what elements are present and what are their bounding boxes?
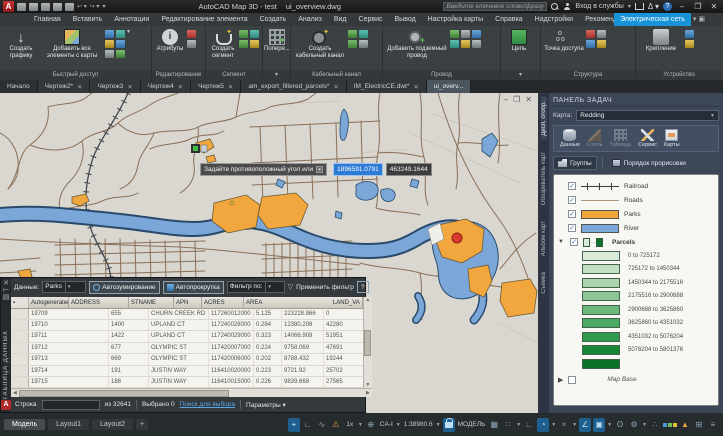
layers-legend: ✓ Railroad ✓ Roads ✓ Parks ✓ Riv bbox=[553, 174, 719, 406]
row-selector-cell[interactable] bbox=[11, 366, 29, 376]
workspace-gear-icon[interactable]: ⚙ bbox=[628, 418, 640, 432]
column-header[interactable]: APN bbox=[174, 297, 202, 308]
coordinate-system-chip[interactable]: CA-I bbox=[379, 418, 394, 432]
ribbon-state-icon[interactable]: ▾ ▣ bbox=[693, 13, 705, 26]
river-swatch bbox=[581, 224, 619, 233]
layer-item-parcels[interactable]: ▼ ✓ ... Parcels bbox=[556, 235, 716, 249]
layer-item-parks[interactable]: ✓ Parks bbox=[556, 207, 716, 221]
feature-marker-red bbox=[452, 233, 462, 243]
table-vertical-scrollbar[interactable]: ▲ ▼ bbox=[363, 297, 372, 389]
table-grid-icon bbox=[614, 129, 627, 141]
table-row[interactable]: 19711 1422 UPLAND CT 117240029000 0.323 … bbox=[11, 331, 363, 342]
table-row[interactable]: 19709 655 CHURN CREEK RD 117260012000 5.… bbox=[11, 309, 363, 320]
layer-item-roads[interactable]: ✓ Roads bbox=[556, 193, 716, 207]
wire-small-tools bbox=[450, 28, 481, 48]
main-area: – ❐ ✕ Задайте противоположный угол или ▾… bbox=[0, 93, 723, 413]
new-file-icon[interactable] bbox=[17, 3, 26, 11]
redo-icon[interactable]: ↪ ▾ bbox=[90, 3, 100, 10]
plot-icon[interactable] bbox=[65, 3, 74, 11]
create-duct-button[interactable]: ✦ Создать кабельный канал bbox=[294, 28, 346, 60]
doc-tab[interactable]: Чертеж5 ✕ bbox=[191, 80, 241, 93]
table-row[interactable]: 19714 191 JUSTIN WAY 116410020000 0.223 … bbox=[11, 366, 363, 377]
roads-swatch bbox=[581, 200, 619, 201]
app-menu-icon[interactable]: A bbox=[3, 1, 14, 12]
save-icon[interactable] bbox=[41, 3, 50, 11]
map-label: Карта: bbox=[553, 112, 572, 119]
map-scale-chip[interactable]: 1:38980.6 bbox=[403, 418, 434, 432]
tool-icon[interactable] bbox=[116, 40, 125, 48]
map-icon bbox=[64, 29, 80, 45]
layer-checkbox[interactable]: ✓ bbox=[568, 182, 576, 190]
groups-icon bbox=[558, 159, 567, 167]
task-pane-side-tabs: Дисп. отобр. Обозреватель карт Альбом ка… bbox=[538, 93, 549, 413]
editing-small-tools bbox=[187, 28, 196, 48]
dynamic-input-tooltip: Задайте противоположный угол или ▾ 18965… bbox=[200, 163, 432, 176]
ucs-icon[interactable]: ∟ bbox=[302, 418, 314, 432]
open-file-icon[interactable] bbox=[29, 3, 38, 11]
tool-icon[interactable] bbox=[450, 30, 459, 38]
info-icon: i bbox=[162, 29, 178, 45]
theme-range-swatch bbox=[582, 359, 620, 369]
layer-checkbox[interactable] bbox=[568, 376, 576, 384]
tool-icon[interactable] bbox=[348, 40, 357, 48]
globe-icon[interactable]: ⊕ bbox=[365, 418, 377, 432]
close-tab-icon[interactable]: ✕ bbox=[413, 83, 418, 91]
theme-range-row[interactable]: 2900688 to 3625860 bbox=[556, 303, 716, 317]
object-snap-icon[interactable]: ▣ bbox=[593, 418, 605, 432]
row-selector-header[interactable]: ▪ bbox=[11, 297, 29, 308]
layer-item-railroad[interactable]: ✓ Railroad bbox=[556, 179, 716, 193]
tool-icon[interactable] bbox=[359, 30, 368, 38]
ribbon-group-cross-section: + Попере... ▾ bbox=[263, 26, 291, 80]
ribbon-group-quick-access: ↓ Создать графику Добавить все элементы … bbox=[0, 26, 152, 80]
side-tab-display-manager[interactable]: Дисп. отобр. bbox=[541, 97, 547, 140]
table-tool-button[interactable]: Таблица bbox=[610, 129, 632, 148]
ribbon-group-circuit: Цепь ▾ bbox=[501, 26, 541, 80]
row-selector-cell[interactable] bbox=[11, 343, 29, 353]
tool-icon[interactable] bbox=[597, 40, 606, 48]
column-header[interactable]: ADDRESS bbox=[69, 297, 129, 308]
ribbon-tab-active-wrap: Электрическая сеть ▾ ▣ bbox=[614, 13, 705, 26]
a360-icon[interactable]: Δ ▾ bbox=[648, 2, 659, 11]
theme-range-swatch bbox=[582, 278, 620, 288]
annotation-warning-icon[interactable]: ⚠ bbox=[330, 418, 342, 432]
polar-tracking-icon[interactable]: ∠ bbox=[579, 418, 591, 432]
ribbon-group-device: Крепление Устройство bbox=[636, 26, 722, 80]
scroll-up-icon[interactable]: ▲ bbox=[365, 297, 370, 303]
close-tab-icon[interactable]: ✕ bbox=[178, 83, 183, 91]
autohide-icon[interactable]: ⊢ bbox=[3, 287, 9, 294]
ortho-mode-icon[interactable]: × bbox=[558, 418, 570, 432]
infer-constraints-icon[interactable]: ∟ bbox=[523, 418, 535, 432]
data-table-toolbar: Данные: Parks▾ Автозумирование Автопрокр… bbox=[11, 278, 372, 297]
tool-icon[interactable] bbox=[250, 40, 259, 48]
table-help-button[interactable]: ? bbox=[357, 281, 369, 293]
drawing-minimize-icon[interactable]: – bbox=[504, 95, 508, 104]
isodraft-icon[interactable]: ∿ bbox=[316, 418, 328, 432]
tool-icon[interactable] bbox=[116, 50, 125, 58]
task-pane-title: ПАНЕЛЬ ЗАДАЧ bbox=[553, 95, 719, 107]
signin-label[interactable]: Вход в службы bbox=[575, 3, 623, 10]
column-header[interactable]: Autogenerated_SDF_ID bbox=[29, 297, 69, 308]
autoscroll-icon bbox=[167, 284, 174, 291]
grid-display-icon[interactable]: ▦ bbox=[488, 418, 500, 432]
doc-tabs-list: Чертеж2* ✕ Чертеж3 ✕ Чертеж4 ✕ Чертеж5 ✕ bbox=[38, 80, 427, 93]
filter-by-select[interactable]: Фильтр по:▾ bbox=[227, 281, 285, 293]
ribbon-tab-active[interactable]: Электрическая сеть bbox=[614, 13, 691, 26]
tool-icon[interactable] bbox=[105, 30, 114, 38]
close-tab-icon[interactable]: ✕ bbox=[77, 83, 82, 91]
layer-select[interactable]: Parks▾ bbox=[42, 281, 86, 293]
ribbon-tab[interactable]: Вид bbox=[328, 13, 353, 26]
close-palette-icon[interactable]: ✕ bbox=[3, 280, 9, 287]
group-dropdown-icon[interactable]: ▾ bbox=[501, 70, 540, 80]
apply-filter-button[interactable]: Применить фильтр bbox=[296, 284, 354, 291]
trusted-autodesk-icon[interactable]: ▲ bbox=[679, 418, 691, 432]
ribbon-tab[interactable]: Создать bbox=[254, 13, 293, 26]
theme-range-row[interactable]: 0 to 725172 bbox=[556, 249, 716, 263]
ribbon-tab[interactable]: Редактирование элемента bbox=[155, 13, 253, 26]
layer-item-map-base[interactable]: ▶ Map Base bbox=[556, 373, 716, 387]
create-graphic-button[interactable]: ↓ Создать графику bbox=[3, 28, 39, 60]
coordinate-y-input[interactable]: 463249.1644 bbox=[386, 163, 432, 176]
tool-icon[interactable] bbox=[348, 30, 357, 38]
layout1-tab[interactable]: Layout1 bbox=[48, 419, 89, 430]
autozoom-button[interactable]: Автозумирование bbox=[89, 281, 159, 294]
minimize-button[interactable]: – bbox=[676, 2, 688, 11]
maps-tool-button[interactable]: Карты bbox=[664, 129, 680, 148]
draw-order-icon bbox=[612, 159, 621, 167]
row-label: Строка bbox=[15, 401, 37, 408]
tool-icon[interactable] bbox=[472, 40, 481, 48]
row-selector-cell[interactable] bbox=[11, 320, 29, 330]
theme-range-row[interactable] bbox=[556, 357, 716, 371]
tool-icon[interactable] bbox=[461, 30, 470, 38]
row-selector-cell[interactable] bbox=[11, 331, 29, 341]
pencil-icon[interactable] bbox=[461, 40, 470, 48]
row-selector-cell[interactable] bbox=[11, 377, 29, 387]
autocad-palette-logo: A bbox=[1, 400, 11, 410]
doc-tab[interactable]: Чертеж3 ✕ bbox=[90, 80, 140, 93]
layer-checkbox[interactable]: ✓ bbox=[570, 238, 578, 246]
railroad-swatch bbox=[581, 183, 619, 190]
side-tab-map-explorer[interactable]: Обозреватель карт bbox=[541, 148, 547, 209]
brush-icon bbox=[588, 129, 601, 141]
undo-icon[interactable]: ↩ ▾ bbox=[77, 3, 87, 10]
customization-menu-icon[interactable]: ≡ bbox=[707, 418, 719, 432]
ribbon-tab[interactable]: Аннотации bbox=[108, 13, 155, 26]
column-header[interactable]: AREA bbox=[244, 297, 331, 308]
tool-icon[interactable] bbox=[250, 30, 259, 38]
tools-icon bbox=[641, 129, 654, 141]
theme-range-swatch bbox=[582, 332, 620, 342]
ribbon-tab[interactable]: Надстройки bbox=[529, 13, 579, 26]
mount-button[interactable]: Крепление bbox=[639, 28, 683, 53]
doc-tab[interactable]: Чертеж4 ✕ bbox=[141, 80, 191, 93]
close-tab-icon[interactable]: ✕ bbox=[333, 83, 338, 91]
tool-icon[interactable] bbox=[116, 30, 125, 38]
share-icon[interactable]: ∴ bbox=[649, 418, 661, 432]
add-underground-wire-button[interactable]: + Добавить подземный провод bbox=[386, 28, 448, 60]
document-name: ui_overview.dwg bbox=[286, 2, 341, 11]
model-tab[interactable]: Модель bbox=[4, 419, 45, 430]
table-row[interactable]: 19712 677 OLYMPIC ST 117420007000 0.224 … bbox=[11, 343, 363, 354]
data-tool-button[interactable]: Данные bbox=[560, 129, 580, 148]
theme-range-row[interactable]: 3625860 to 4351032 bbox=[556, 317, 716, 331]
ribbon-group-segment: ✦ Создать сегмент Сегмент bbox=[206, 26, 263, 80]
groups-button[interactable]: Группы bbox=[553, 156, 597, 170]
scroll-left-icon[interactable]: ◀ bbox=[13, 390, 17, 396]
restore-button[interactable]: ❐ bbox=[692, 2, 704, 11]
options-menu-button[interactable]: Параметры ▾ bbox=[246, 401, 286, 409]
search-to-select-link[interactable]: Поиск для выбора bbox=[180, 401, 235, 408]
search-input[interactable]: Введите ключевое слово/фразу bbox=[443, 2, 547, 11]
zoom-tool-icon[interactable] bbox=[105, 40, 114, 48]
map-select[interactable]: Redding ▼ bbox=[576, 110, 719, 121]
side-tab-survey[interactable]: Съемка bbox=[541, 268, 547, 298]
close-tab-icon[interactable]: ✕ bbox=[127, 83, 132, 91]
tool-icon[interactable] bbox=[359, 40, 368, 48]
signin-avatar-icon[interactable] bbox=[563, 3, 571, 11]
add-all-map-elements-button[interactable]: Добавить все элементы с карты bbox=[41, 28, 103, 60]
task-pane-toolbar: Данные Стиль Таблица Сервис Карты bbox=[553, 125, 719, 152]
total-rows-text: из 32641 bbox=[105, 401, 132, 408]
column-header[interactable]: LAND_VA bbox=[331, 297, 363, 308]
theme-range-swatch bbox=[582, 345, 620, 355]
cross-section-button[interactable]: + Попере... bbox=[266, 28, 288, 53]
ribbon-tab[interactable]: Сервис bbox=[353, 13, 389, 26]
table-row[interactable]: 19713 669 OLYMPIC ST 117420006000 0.202 … bbox=[11, 354, 363, 365]
coordinate-x-input[interactable]: 1896591.0791 bbox=[333, 163, 383, 176]
theme-range-row[interactable]: 2175516 to 2900688 bbox=[556, 290, 716, 304]
document-tab-bar: Начало Чертеж2* ✕ Чертеж3 ✕ Чертеж4 ✕ bbox=[0, 80, 723, 93]
mount-icon bbox=[653, 29, 669, 45]
tool-icon[interactable] bbox=[239, 40, 248, 48]
ribbon-group-duct: ✦ Создать кабельный канал Кабельный кана… bbox=[291, 26, 383, 80]
ribbon-tab[interactable]: Главная bbox=[28, 13, 67, 26]
layer-item-river[interactable]: ✓ River bbox=[556, 221, 716, 235]
row-selector-cell[interactable] bbox=[11, 309, 29, 319]
layer-checkbox[interactable]: ✓ bbox=[568, 196, 576, 204]
group-dropdown-icon[interactable]: ▾ bbox=[263, 70, 290, 80]
annotation-visibility-icon[interactable]: ʘ bbox=[614, 418, 626, 432]
chevron-right-icon[interactable]: ▶ bbox=[558, 376, 563, 384]
theme-range-swatch bbox=[582, 305, 620, 315]
layer-checkbox[interactable]: ✓ bbox=[568, 210, 576, 218]
table-row[interactable]: 19715 188 JUSTIN WAY 116410015000 0.226 … bbox=[11, 377, 363, 388]
theme-range-swatch bbox=[582, 318, 620, 328]
clean-screen-icon[interactable]: ⊞ bbox=[693, 418, 705, 432]
scroll-right-icon[interactable]: ▶ bbox=[366, 390, 370, 396]
theme-range-swatch bbox=[582, 264, 620, 274]
group-dropdown-icon[interactable]: ▾ bbox=[127, 28, 130, 35]
doc-tab-start[interactable]: Начало bbox=[0, 80, 38, 93]
close-tab-icon[interactable]: ✕ bbox=[228, 83, 233, 91]
quick-access-small-tools bbox=[105, 28, 125, 58]
structure-small-tools bbox=[586, 28, 606, 48]
palette-title: ТАБЛИЦА ДАННЫХ bbox=[3, 304, 9, 400]
data-table-palette: ✕ ⊢ ▤ ТАБЛИЦА ДАННЫХ A Данные: Parks▾ Ав… bbox=[0, 277, 366, 413]
row-selector-cell[interactable] bbox=[11, 354, 29, 364]
doc-tab[interactable]: IM_ElectricCE.dwt* ✕ bbox=[347, 80, 427, 93]
circuit-button[interactable]: Цепь bbox=[504, 28, 534, 53]
performance-icon[interactable] bbox=[663, 423, 677, 427]
layout2-tab[interactable]: Layout2 bbox=[92, 419, 133, 430]
feature-marker-green bbox=[191, 144, 207, 153]
layer-checkbox[interactable]: ✓ bbox=[568, 224, 576, 232]
command-prompt-text: Задайте противоположный угол или bbox=[204, 164, 313, 175]
wire-icon: + bbox=[409, 29, 425, 45]
move-tool-icon[interactable] bbox=[187, 40, 196, 48]
prompt-options-icon[interactable]: ▾ bbox=[316, 166, 323, 173]
help-icon[interactable]: ? bbox=[663, 2, 672, 11]
drawing-window-controls: – ❐ ✕ bbox=[504, 95, 532, 104]
duct-small-tools bbox=[348, 28, 368, 48]
table-horizontal-scrollbar[interactable]: ◀ ▶ bbox=[11, 388, 372, 397]
window-title: AutoCAD Map 3D - test bbox=[198, 2, 276, 11]
access-point-icon bbox=[556, 29, 572, 45]
column-header[interactable]: ACRES bbox=[202, 297, 244, 308]
style-tool-button[interactable]: Стиль bbox=[587, 129, 603, 148]
scroll-down-icon[interactable]: ▼ bbox=[365, 382, 370, 388]
data-label: Данные: bbox=[14, 284, 39, 291]
theme-range-row[interactable]: 4351032 to 5076204 bbox=[556, 330, 716, 344]
ribbon-tab[interactable]: Вставить bbox=[67, 13, 109, 26]
drawing-restore-icon[interactable]: ❐ bbox=[513, 95, 520, 104]
device-small-tools bbox=[685, 28, 694, 48]
access-point-button[interactable]: Точка доступа bbox=[544, 28, 584, 53]
side-tab-map-book[interactable]: Альбом карт bbox=[541, 217, 547, 260]
ribbon-group-structure: Точка доступа Структура bbox=[541, 26, 636, 80]
selected-count: Выбрано 0 bbox=[142, 401, 175, 408]
model-space-chip[interactable]: МОДЕЛЬ bbox=[457, 418, 487, 432]
store-cart-icon[interactable] bbox=[635, 3, 644, 10]
ribbon-tab[interactable]: Настройка карты bbox=[422, 13, 490, 26]
column-header[interactable]: STNAME bbox=[129, 297, 174, 308]
ribbon: ↓ Создать графику Добавить все элементы … bbox=[0, 26, 723, 80]
create-segment-button[interactable]: ✦ Создать сегмент bbox=[209, 28, 237, 60]
grid-icon: + bbox=[269, 29, 285, 45]
autozoom-icon bbox=[93, 284, 100, 291]
duct-icon: ✦ bbox=[312, 29, 328, 45]
parks-swatch bbox=[581, 210, 619, 219]
down-arrow-icon: ↓ bbox=[13, 29, 29, 45]
autoscroll-button[interactable]: Автопрокрутка bbox=[163, 281, 224, 294]
autocad-window: A ↩ ▾ ↪ ▾ ▾ AutoCAD Map 3D - test ui_ove… bbox=[0, 0, 723, 436]
attributes-button[interactable]: i Атрибуты bbox=[155, 28, 185, 53]
tool-icon[interactable] bbox=[187, 30, 196, 38]
tool-icon[interactable] bbox=[450, 40, 459, 48]
segment-icon: ✦ bbox=[215, 29, 231, 45]
status-bar: Модель Layout1 Layout2 + ⌖ ∟ ∿ ⚠ 1x ▼ ⊕ … bbox=[0, 413, 723, 436]
scroll-thumb[interactable] bbox=[19, 390, 229, 397]
theme-range-swatch bbox=[582, 291, 620, 301]
circuit-icon bbox=[511, 29, 527, 45]
dynamic-input-icon[interactable]: ◔ bbox=[537, 418, 549, 432]
table-row[interactable]: 19710 1400 UPLAND CT 117240028000 0.284 … bbox=[11, 320, 363, 331]
chevron-down-icon: ▼ bbox=[710, 111, 715, 121]
snap-mode-icon[interactable]: ∷ bbox=[502, 418, 514, 432]
filter-funnel-icon: ▽ bbox=[288, 283, 293, 291]
theme-range-swatch bbox=[582, 251, 620, 261]
data-table-titlebar: ✕ ⊢ ▤ ТАБЛИЦА ДАННЫХ A bbox=[1, 278, 11, 412]
ribbon-tab[interactable]: Справка bbox=[489, 13, 528, 26]
theme-range-row[interactable]: 5076204 to 5801376 bbox=[556, 344, 716, 358]
search-icon[interactable] bbox=[551, 3, 559, 11]
database-icon bbox=[563, 129, 576, 141]
tool-icon[interactable] bbox=[597, 30, 606, 38]
tool-icon[interactable] bbox=[685, 40, 694, 48]
draw-order-button[interactable]: Порядок прорисовки bbox=[608, 157, 690, 169]
titlebar: A ↩ ▾ ↪ ▾ ▾ AutoCAD Map 3D - test ui_ove… bbox=[0, 0, 723, 13]
lock-icon[interactable] bbox=[443, 418, 455, 432]
tool-icon[interactable] bbox=[472, 30, 481, 38]
tool-icon[interactable] bbox=[239, 30, 248, 38]
scroll-thumb[interactable] bbox=[364, 330, 371, 356]
tools-tool-button[interactable]: Сервис bbox=[638, 129, 657, 148]
doc-tab[interactable]: am_export_filtered_parcels* ✕ bbox=[241, 80, 346, 93]
ribbon-group-editing: i Атрибуты Редактирование bbox=[152, 26, 206, 80]
properties-icon[interactable]: ▤ bbox=[3, 294, 10, 301]
add-layout-button[interactable]: + bbox=[136, 419, 148, 430]
grid-header-row: ▪ Autogenerated_SDF_IDADDRESSSTNAMEAPNAC… bbox=[11, 297, 363, 309]
grid-rows: 19709 655 CHURN CREEK RD 117260012000 5.… bbox=[11, 309, 363, 389]
annotation-scale[interactable]: 1x bbox=[344, 418, 356, 432]
data-table-footer: Строка из 32641 Выбрано 0 Поиск для выбо… bbox=[11, 397, 372, 412]
map-page-icon bbox=[665, 129, 678, 141]
tool-icon[interactable] bbox=[685, 30, 694, 38]
saveas-icon[interactable] bbox=[53, 3, 62, 11]
theme-range-row[interactable]: 1450344 to 2175516 bbox=[556, 276, 716, 290]
qat-customize-icon[interactable]: ▾ bbox=[102, 3, 105, 10]
signin-dropdown-icon[interactable]: ▾ bbox=[628, 3, 631, 10]
data-grid: ▪ Autogenerated_SDF_IDADDRESSSTNAMEAPNAC… bbox=[11, 297, 372, 389]
snap-cursor-icon[interactable]: ⌖ bbox=[288, 418, 300, 432]
row-number-input[interactable] bbox=[42, 400, 100, 410]
ribbon-tab[interactable]: Вывод bbox=[389, 13, 422, 26]
doc-tab[interactable]: Чертеж2* ✕ bbox=[38, 80, 91, 93]
theme-range-row[interactable]: 725172 to 1450344 bbox=[556, 263, 716, 277]
segment-small-tools bbox=[239, 28, 259, 48]
parcels-theme-swatch: ... bbox=[583, 238, 607, 247]
pan-tool-icon[interactable] bbox=[105, 50, 114, 58]
drawing-close-icon[interactable]: ✕ bbox=[525, 95, 532, 104]
ribbon-group-wire: + Добавить подземный провод Провод bbox=[383, 26, 501, 80]
doc-tab-active[interactable]: ui_overv... bbox=[427, 80, 472, 93]
close-button[interactable]: ✕ bbox=[708, 2, 720, 11]
tool-icon[interactable] bbox=[586, 30, 595, 38]
chevron-down-icon[interactable]: ▼ bbox=[558, 239, 565, 245]
tool-icon[interactable] bbox=[586, 40, 595, 48]
ribbon-tab[interactable]: Анализ bbox=[292, 13, 328, 26]
task-pane: ПАНЕЛЬ ЗАДАЧ Карта: Redding ▼ Данные Сти… bbox=[549, 93, 723, 413]
parcels-ramp: 0 to 725172 725172 to 1450344 1450344 to… bbox=[556, 249, 716, 371]
